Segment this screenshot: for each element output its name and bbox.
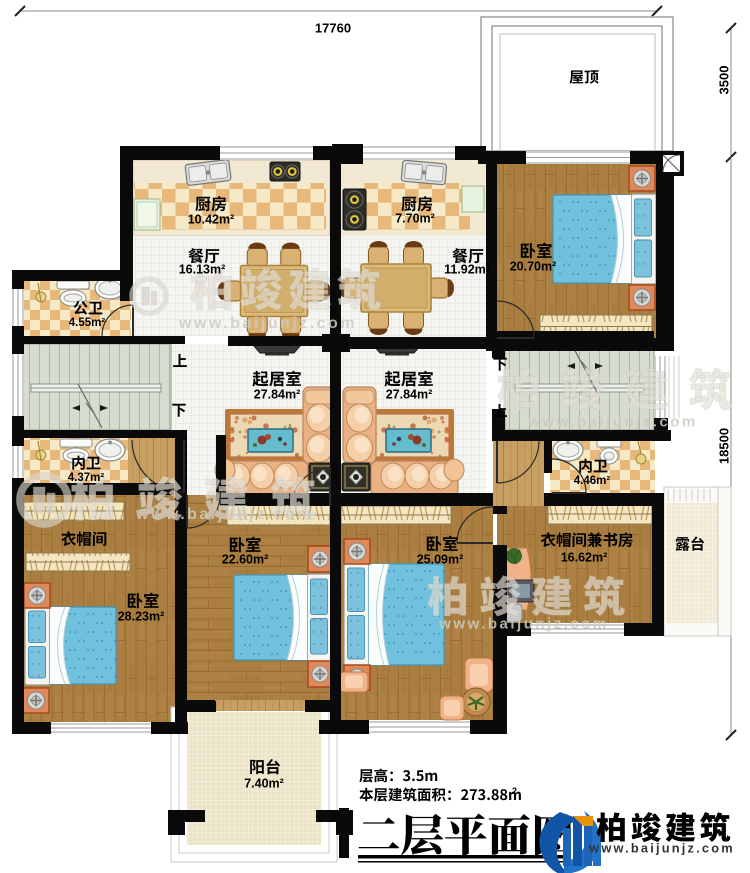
svg-text:20.70m²: 20.70m² <box>510 260 557 274</box>
svg-text:www.baijunjz.com: www.baijunjz.com <box>588 841 735 856</box>
svg-text:4.55m²: 4.55m² <box>69 317 106 329</box>
svg-text:3500: 3500 <box>717 66 732 95</box>
svg-text:18500: 18500 <box>717 428 732 464</box>
svg-text:10.42m²: 10.42m² <box>188 213 235 227</box>
svg-text:2: 2 <box>512 786 517 796</box>
svg-text:16.13m²: 16.13m² <box>179 263 226 277</box>
svg-text:17760: 17760 <box>315 21 351 36</box>
svg-text:11.92m²: 11.92m² <box>444 263 490 277</box>
svg-text:www.baijunjz.com: www.baijunjz.com <box>527 413 697 430</box>
svg-text:4.37m²: 4.37m² <box>68 472 105 484</box>
svg-text:28.23m²: 28.23m² <box>118 610 165 624</box>
svg-text:25.09m²: 25.09m² <box>417 553 464 567</box>
svg-text:www.baijunjz.com: www.baijunjz.com <box>178 315 357 332</box>
svg-text:7.40m²: 7.40m² <box>244 777 284 791</box>
svg-text:www.baijunjz.com: www.baijunjz.com <box>438 615 608 632</box>
svg-text:27.84m²: 27.84m² <box>254 388 301 402</box>
svg-text:27.84m²: 27.84m² <box>386 388 433 402</box>
svg-text:16.62m²: 16.62m² <box>561 551 608 565</box>
svg-text:22.60m²: 22.60m² <box>222 553 269 567</box>
svg-text:4.46m²: 4.46m² <box>574 475 611 487</box>
svg-text:7.70m²: 7.70m² <box>395 212 435 226</box>
svg-text:www.baijunjz.com: www.baijunjz.com <box>135 506 314 523</box>
